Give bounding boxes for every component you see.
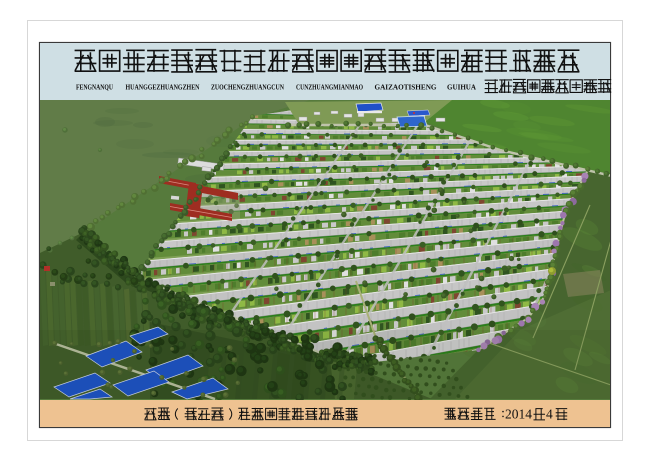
svg-text:ZUOCHENGZHUANGCUN: ZUOCHENGZHUANGCUN [211, 84, 285, 92]
svg-text:HUANGGEZHUANGZHEN: HUANGGEZHUANGZHEN [126, 84, 201, 92]
svg-text:2014: 2014 [505, 407, 532, 422]
svg-text:CUNZHUANGMIANMAO: CUNZHUANGMIANMAO [296, 84, 363, 92]
svg-text:GAIZAOTISHENG: GAIZAOTISHENG [375, 84, 437, 92]
svg-text:4: 4 [546, 407, 553, 422]
svg-text:GUIHUA: GUIHUA [447, 84, 477, 92]
svg-text:FENGNANQU: FENGNANQU [76, 84, 114, 92]
